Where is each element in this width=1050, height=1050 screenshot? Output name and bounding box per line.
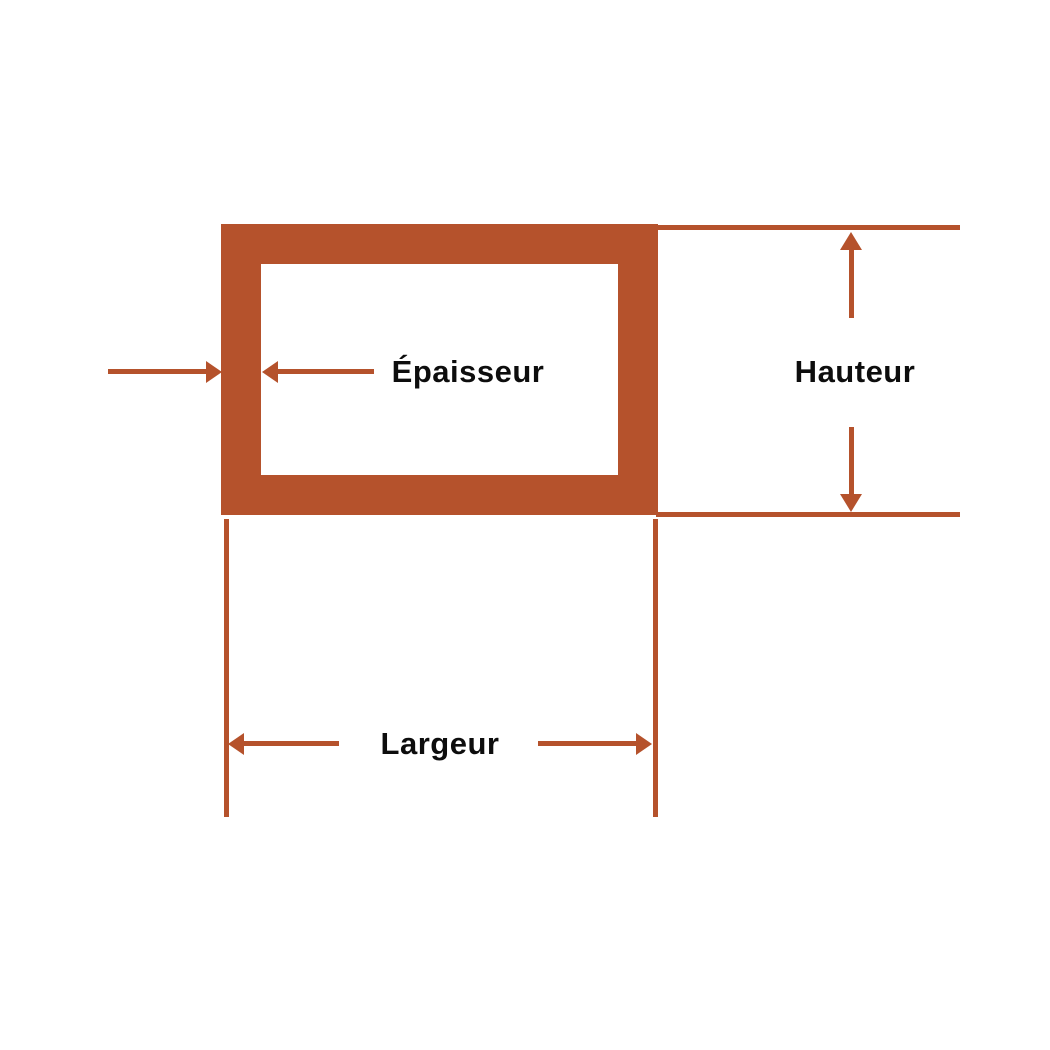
width-extension-line-left [224, 519, 229, 817]
height-arrow-up-shaft [849, 249, 854, 318]
thickness-arrow-inner-shaft [277, 369, 374, 374]
width-arrow-left-head-icon [228, 733, 244, 755]
width-arrow-right-head-icon [636, 733, 652, 755]
height-extension-line-bottom [656, 512, 960, 517]
width-label: Largeur [381, 726, 500, 762]
height-arrow-down-head-icon [840, 494, 862, 512]
thickness-label: Épaisseur [392, 354, 545, 390]
height-arrow-down-shaft [849, 427, 854, 495]
width-extension-line-right [653, 519, 658, 817]
height-arrow-up-head-icon [840, 232, 862, 250]
dimension-diagram: Épaisseur Hauteur Largeur [0, 0, 1050, 1050]
thickness-arrow-inner-head-icon [262, 361, 278, 383]
thickness-arrow-outer-head-icon [206, 361, 222, 383]
height-label: Hauteur [795, 354, 916, 390]
width-arrow-right-shaft [538, 741, 637, 746]
thickness-arrow-outer-shaft [108, 369, 207, 374]
height-extension-line-top [656, 225, 960, 230]
width-arrow-left-shaft [243, 741, 339, 746]
